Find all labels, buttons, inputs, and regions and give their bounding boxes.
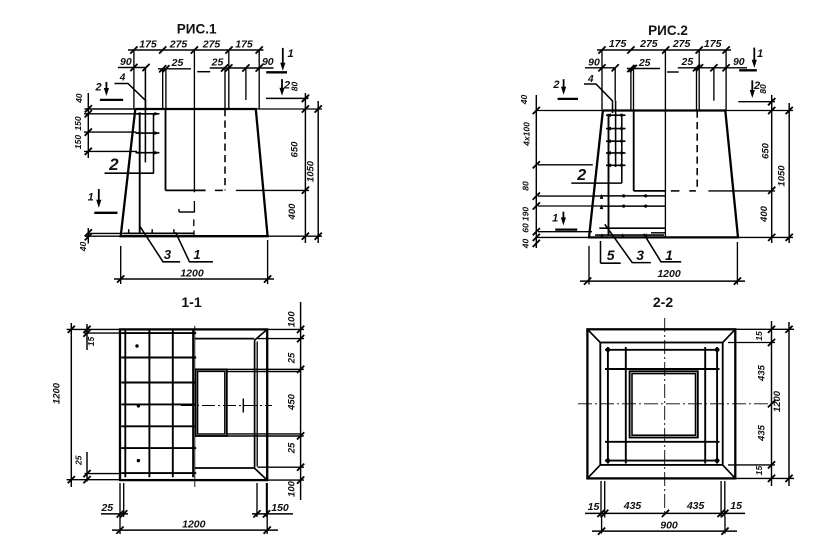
svg-text:25: 25 [681,56,694,68]
svg-text:1: 1 [757,48,763,60]
svg-text:150: 150 [73,116,83,130]
svg-text:3: 3 [636,247,644,263]
svg-text:275: 275 [169,38,188,50]
svg-text:25: 25 [211,57,224,69]
svg-text:150: 150 [73,135,83,149]
svg-text:4: 4 [119,73,126,84]
svg-text:1: 1 [552,212,558,224]
svg-text:15: 15 [588,501,600,513]
svg-text:100: 100 [287,480,298,497]
svg-text:650: 650 [761,142,772,159]
svg-text:400: 400 [287,203,298,221]
svg-text:40: 40 [521,239,531,250]
svg-text:175: 175 [235,38,253,50]
svg-text:90: 90 [588,56,600,68]
svg-text:РИС.1: РИС.1 [177,21,217,36]
svg-text:150: 150 [271,502,289,514]
svg-text:1050: 1050 [306,160,317,182]
svg-text:15: 15 [754,331,764,341]
svg-text:25: 25 [171,57,184,69]
svg-text:435: 435 [623,500,642,512]
svg-text:15: 15 [730,500,742,512]
svg-text:275: 275 [202,38,221,50]
svg-text:435: 435 [686,500,705,512]
svg-text:435: 435 [757,364,768,382]
svg-text:900: 900 [660,519,678,531]
svg-text:90: 90 [262,56,274,68]
svg-text:1: 1 [193,247,200,262]
svg-text:1-1: 1-1 [181,294,201,310]
svg-text:3: 3 [164,247,172,262]
svg-text:435: 435 [757,424,768,442]
svg-text:1200: 1200 [772,390,783,412]
svg-text:4x100: 4x100 [522,122,532,147]
svg-text:90: 90 [120,56,132,68]
svg-text:4: 4 [587,74,594,85]
svg-text:1200: 1200 [182,518,206,530]
svg-text:100: 100 [287,311,298,328]
svg-text:40: 40 [74,93,84,104]
svg-text:2: 2 [94,82,101,94]
svg-text:2: 2 [576,167,586,184]
svg-text:40: 40 [519,95,529,106]
svg-text:175: 175 [704,38,722,50]
svg-text:2-2: 2-2 [653,294,673,310]
svg-text:275: 275 [672,38,691,50]
svg-text:25: 25 [287,352,298,364]
svg-text:80: 80 [521,181,531,191]
svg-text:2: 2 [552,79,559,91]
svg-text:1: 1 [88,192,94,204]
svg-text:80: 80 [290,82,300,92]
svg-text:25: 25 [287,442,298,454]
svg-text:175: 175 [139,38,157,50]
svg-text:1200: 1200 [657,268,681,280]
svg-text:25: 25 [100,502,113,514]
svg-text:1200: 1200 [180,267,204,279]
svg-text:РИС.2: РИС.2 [648,23,688,38]
svg-text:1200: 1200 [52,382,63,404]
svg-text:190: 190 [521,207,531,221]
svg-text:25: 25 [73,455,83,466]
svg-text:60: 60 [521,223,531,233]
svg-text:275: 275 [639,38,658,50]
svg-text:2: 2 [108,155,119,174]
svg-text:25: 25 [638,57,651,69]
svg-text:15: 15 [754,466,764,476]
svg-text:1: 1 [287,48,293,60]
svg-text:15: 15 [86,337,96,347]
svg-text:450: 450 [287,393,298,411]
svg-text:1: 1 [665,247,673,263]
svg-text:650: 650 [290,141,301,158]
svg-text:40: 40 [78,242,88,253]
svg-text:1050: 1050 [777,165,788,187]
svg-text:5: 5 [607,247,615,263]
svg-text:175: 175 [609,38,627,50]
svg-text:80: 80 [758,84,768,94]
svg-text:90: 90 [733,56,745,68]
svg-text:400: 400 [759,205,770,223]
